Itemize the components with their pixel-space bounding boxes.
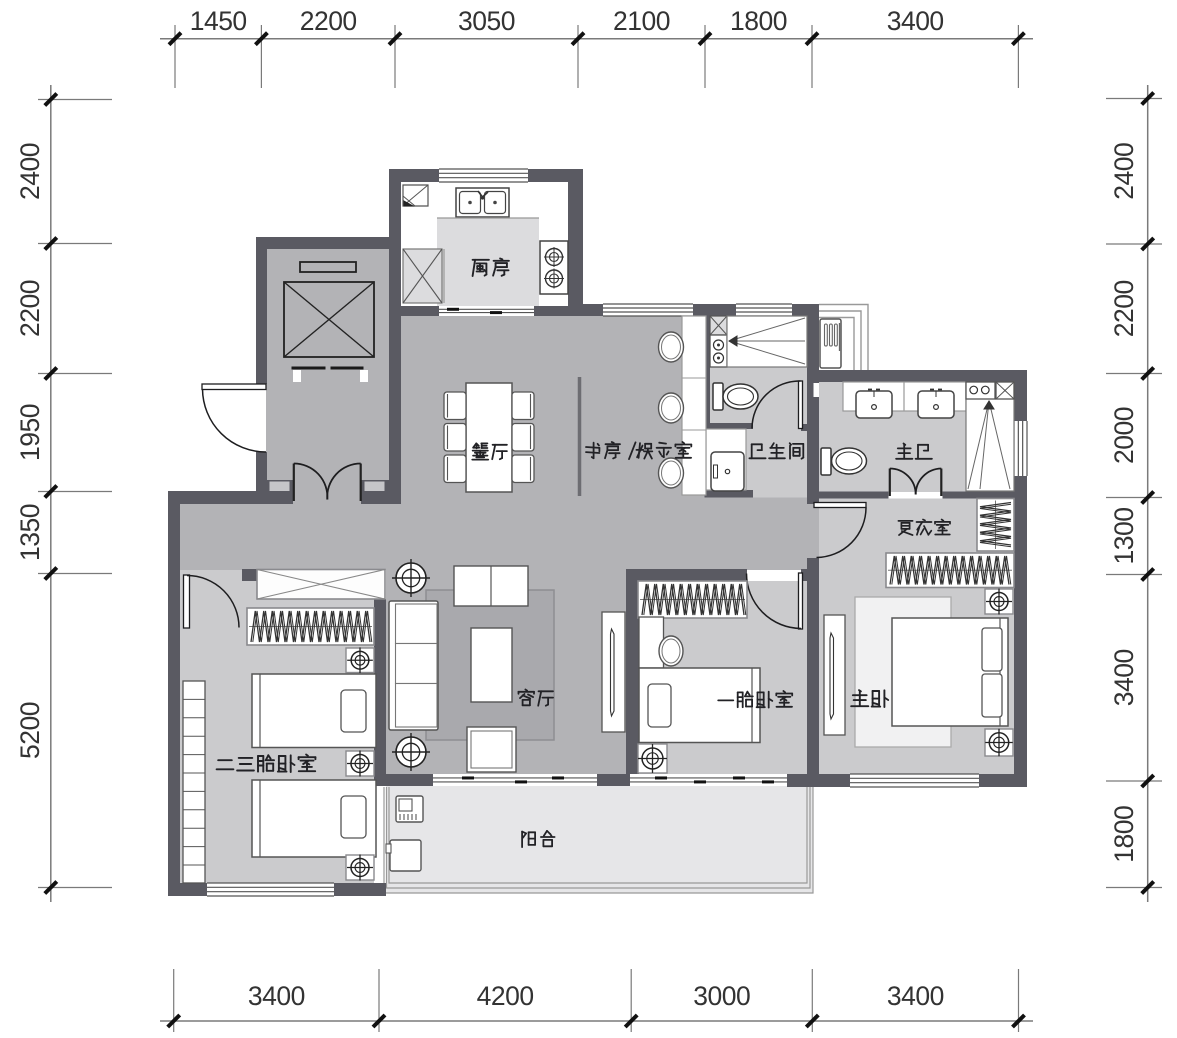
svg-text:4200: 4200 (477, 981, 534, 1011)
svg-text:1350: 1350 (15, 504, 45, 561)
svg-text:3400: 3400 (887, 6, 944, 36)
svg-text:1800: 1800 (730, 6, 787, 36)
svg-text:5200: 5200 (15, 702, 45, 759)
svg-text:2200: 2200 (15, 280, 45, 337)
svg-text:3400: 3400 (248, 981, 305, 1011)
svg-text:1300: 1300 (1109, 508, 1139, 565)
svg-text:1450: 1450 (190, 6, 247, 36)
svg-text:3400: 3400 (1109, 649, 1139, 706)
svg-text:2400: 2400 (15, 143, 45, 200)
svg-text:2400: 2400 (1109, 143, 1139, 200)
svg-text:2200: 2200 (300, 6, 357, 36)
svg-text:3000: 3000 (693, 981, 750, 1011)
svg-text:1950: 1950 (15, 404, 45, 461)
svg-text:2200: 2200 (1109, 280, 1139, 337)
svg-text:3050: 3050 (458, 6, 515, 36)
svg-text:1800: 1800 (1109, 806, 1139, 863)
svg-text:2100: 2100 (613, 6, 670, 36)
svg-text:2000: 2000 (1109, 407, 1139, 464)
svg-text:3400: 3400 (887, 981, 944, 1011)
